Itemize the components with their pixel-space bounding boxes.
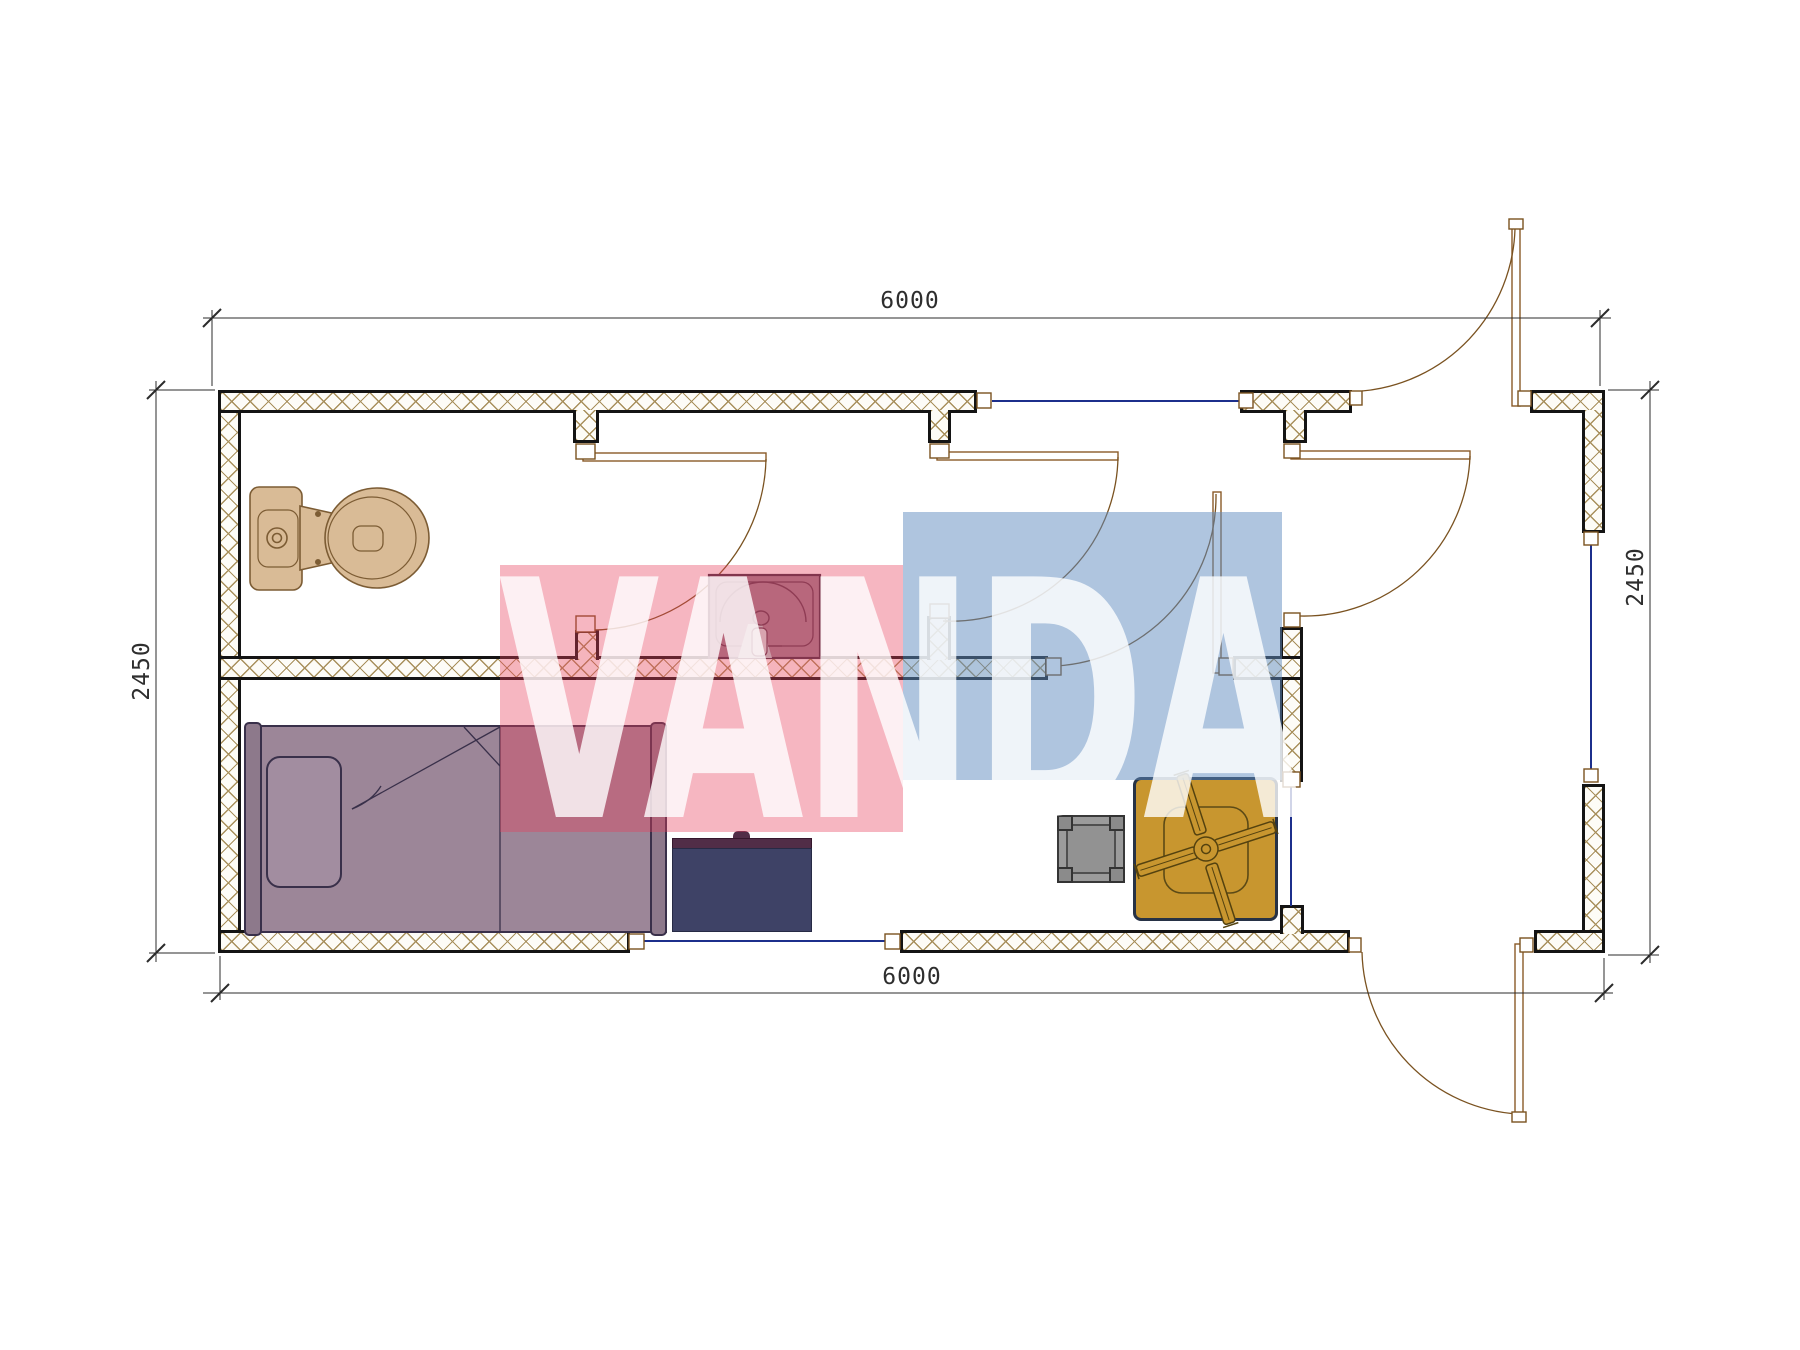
door-leaf <box>583 453 766 461</box>
dimension-left: 2450 <box>129 641 155 700</box>
wall-bottom-right-corner-v <box>1582 784 1605 933</box>
door-leaf <box>937 452 1118 460</box>
door-swing-icon <box>1362 952 1518 1114</box>
wall-top-right-corner-v <box>1582 410 1605 533</box>
wall-bottom-segment-1 <box>218 930 630 953</box>
bed-pillow <box>266 756 342 888</box>
toilet-icon <box>250 487 429 590</box>
door-swing-icon <box>1362 229 1515 391</box>
door-swing-icon <box>1300 456 1470 616</box>
watermark-text: VANDA <box>499 538 1302 868</box>
bed-headboard <box>244 722 262 936</box>
dimension-right: 2450 <box>1623 547 1649 606</box>
pier-porch-top <box>1283 410 1307 443</box>
floor-plan-canvas: 6000 6000 2450 2450 VANDA <box>0 0 1800 1350</box>
door-leaf <box>1515 944 1523 1116</box>
door-leaf <box>1512 226 1520 406</box>
dimension-bottom: 6000 <box>882 964 941 990</box>
pier-wc-top <box>573 410 599 443</box>
wall-bottom-right-corner-h <box>1534 930 1605 953</box>
dimension-top: 6000 <box>880 288 939 314</box>
pier-window-bottom <box>1280 905 1304 934</box>
pier-hall-top <box>928 410 951 443</box>
door-leaf <box>1291 451 1470 459</box>
